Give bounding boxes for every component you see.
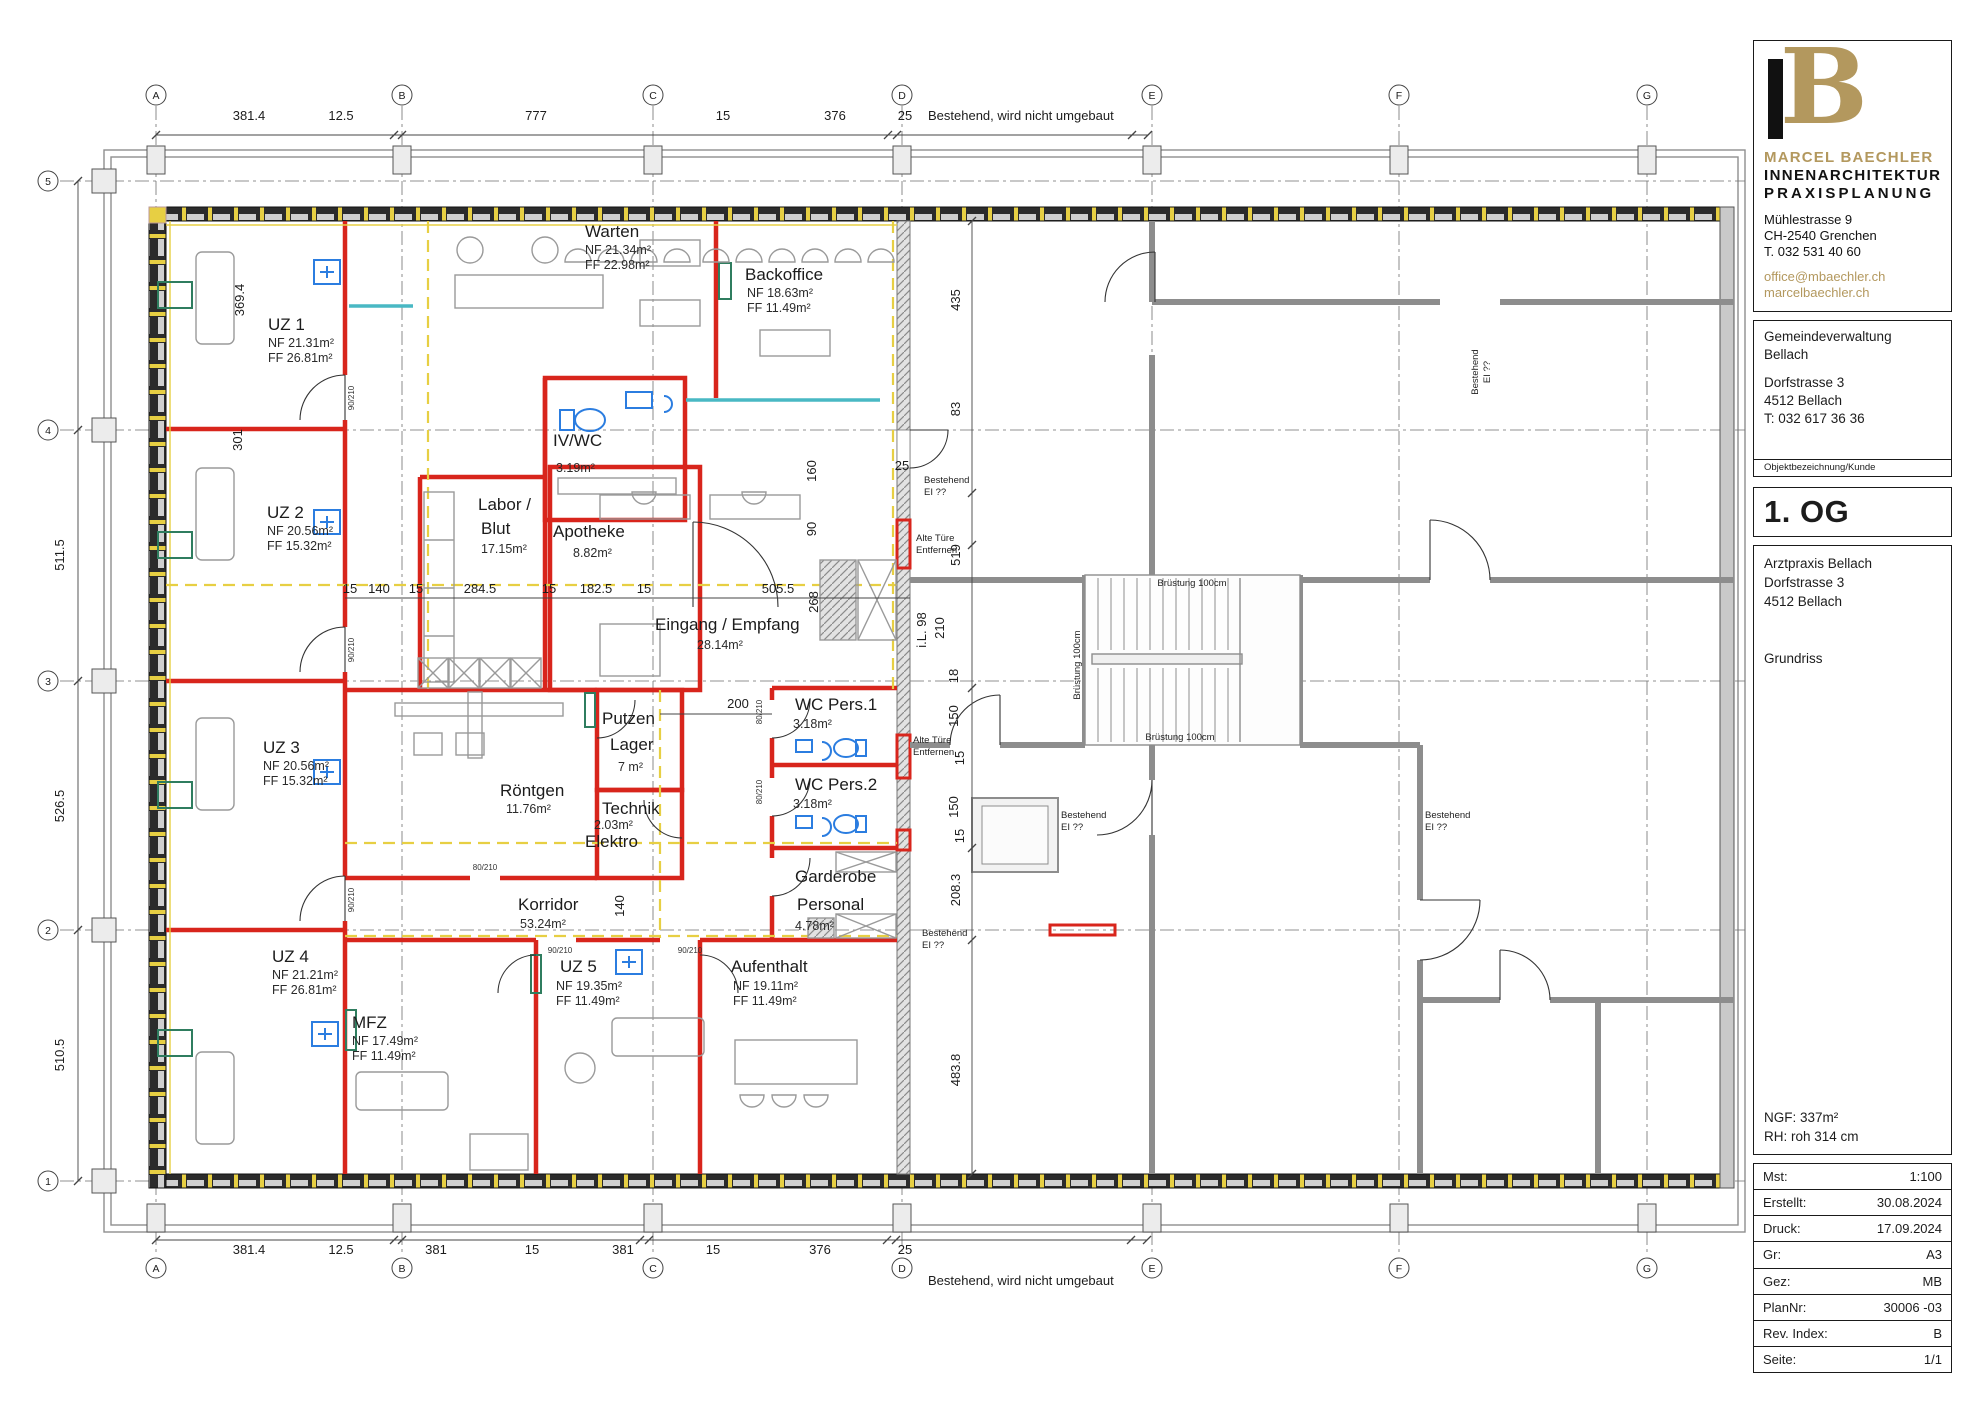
table-row-gez: Gez: MB — [1754, 1268, 1951, 1294]
room-area: 3.18m² — [793, 717, 832, 731]
titleblock-client-box: Gemeindeverwaltung Bellach Dorfstrasse 3… — [1753, 320, 1952, 477]
company-website: marcelbaechler.ch — [1764, 285, 1951, 300]
annotation-parapet: Brüstung 100cm — [1145, 732, 1214, 743]
facade-walls — [92, 146, 1734, 1232]
room-label-labor2: Blut — [481, 519, 511, 538]
dim-left-526-5: 526.5 — [52, 790, 67, 823]
dim-texts-bottom: 381.4 12.5 381 15 381 15 376 25 Bestehen… — [233, 1242, 1114, 1288]
room-label-wcpers1: WC Pers.1 — [795, 695, 877, 714]
dim-mid-15c: 15 — [542, 581, 556, 596]
room-label-putzen: Putzen — [602, 709, 655, 728]
dim-right-160: 160 — [804, 460, 819, 482]
row-label: Gez: — [1763, 1274, 1790, 1289]
room-area: 17.15m² — [481, 542, 527, 556]
grid-letter: E — [1148, 90, 1155, 102]
dim-right-90: 90 — [804, 522, 819, 536]
door-tag: 90/210 — [678, 946, 703, 955]
row-label: Rev. Index: — [1763, 1326, 1828, 1341]
room-area: FF 15.32m² — [263, 774, 328, 788]
staircase — [1085, 575, 1300, 745]
project-name: Arztpraxis Bellach — [1764, 554, 1941, 573]
annotation-old-door: Entfernen — [916, 545, 957, 556]
titleblock-floor-box: 1. OG — [1753, 487, 1952, 537]
spacer — [1764, 364, 1941, 374]
room-label-wcpers2: WC Pers.2 — [795, 775, 877, 794]
dim-mid-200: 200 — [727, 696, 749, 711]
grid-number: 1 — [45, 1176, 51, 1188]
drawing-type: Grundriss — [1754, 611, 1951, 666]
row-label: Druck: — [1763, 1221, 1801, 1236]
company-phone: T. 032 531 40 60 — [1764, 244, 1951, 259]
annotation-existing-bottom: Bestehend, wird nicht umgebaut — [928, 1273, 1114, 1288]
dim-left-510-5: 510.5 — [52, 1039, 67, 1072]
dim-mid-15d: 15 — [637, 581, 651, 596]
dim-mid-140: 140 — [368, 581, 390, 596]
floorplan-sheet: 381.4 12.5 777 15 376 25 Bestehend, wird… — [0, 0, 1984, 1403]
dim-mid-505-5: 505.5 — [762, 581, 795, 596]
door-tag: 80/210 — [473, 863, 498, 872]
table-row-plannr: PlanNr: 30006 -03 — [1754, 1294, 1951, 1320]
room-label-technik2: Elektro — [585, 832, 638, 851]
table-row-erstellt: Erstellt: 30.08.2024 — [1754, 1189, 1951, 1215]
room-area: 4.78m² — [795, 919, 834, 933]
annotation-existing-door: Bestehend — [924, 475, 969, 486]
dim-bottom-15a: 15 — [525, 1242, 539, 1257]
grid-letter: A — [152, 90, 159, 102]
annotation-existing-door: EI ?? — [922, 940, 944, 951]
dim-bottom-381-4: 381.4 — [233, 1242, 266, 1257]
grid-letter: C — [649, 90, 657, 102]
sink-icon — [314, 260, 340, 284]
toilet-icon — [834, 739, 866, 757]
room-area: NF 17.49m² — [352, 1034, 418, 1048]
dim-mid-15a: 15 — [343, 581, 357, 596]
room-area: 8.82m² — [573, 546, 612, 560]
dim-right-483-8: 483.8 — [948, 1054, 963, 1087]
room-area: NF 18.63m² — [747, 286, 813, 300]
annotation-parapet: Brüstung 100cm — [1157, 578, 1226, 589]
dim-mid-15b: 15 — [409, 581, 423, 596]
dim-top-25: 25 — [898, 108, 912, 123]
company-street: Mühlestrasse 9 — [1764, 212, 1951, 227]
annotation-old-door: Entfernen — [913, 747, 954, 758]
sink-icon — [626, 392, 672, 412]
dim-right-210: 210 — [932, 617, 947, 639]
dim-top-376: 376 — [824, 108, 846, 123]
door-tag: 90/210 — [347, 887, 356, 912]
room-area: NF 19.35m² — [556, 979, 622, 993]
room-label-mfz: MFZ — [352, 1013, 387, 1032]
dim-mid-140v: 140 — [612, 895, 627, 917]
titleblock-project-box: Arztpraxis Bellach Dorfstrasse 3 4512 Be… — [1753, 545, 1952, 1155]
row-value: 30006 -03 — [1883, 1300, 1942, 1315]
dim-right-18: 18 — [946, 669, 961, 683]
room-area: FF 26.81m² — [268, 351, 333, 365]
dim-right-150b: 150 — [946, 796, 961, 818]
door-tag: 90/210 — [347, 637, 356, 662]
room-area: 3.19m² — [556, 461, 595, 475]
room-area: 28.14m² — [697, 638, 743, 652]
door-tag: 80/210 — [755, 779, 764, 804]
table-row-revindex: Rev. Index: B — [1754, 1320, 1951, 1346]
row-label: Seite: — [1763, 1352, 1796, 1367]
dim-right-15a: 15 — [952, 751, 967, 765]
shaft — [972, 798, 1058, 872]
door-tag: 90/210 — [548, 946, 573, 955]
table-row-mst: Mst: 1:100 — [1754, 1164, 1951, 1189]
company-logo: B — [1762, 51, 1951, 147]
dim-right-208-3: 208.3 — [948, 874, 963, 907]
annotation-existing-door: Bestehend — [1425, 810, 1470, 821]
annotation-existing-door: Bestehend — [1061, 810, 1106, 821]
grid-letter: A — [152, 1263, 159, 1275]
dim-right-25: 25 — [895, 458, 909, 473]
door-tag: 80/210 — [755, 699, 764, 724]
room-label-garderobe: Garderobe — [795, 867, 876, 886]
room-area: NF 20.56m² — [263, 759, 329, 773]
floor-title: 1. OG — [1754, 488, 1951, 530]
grid-letter: B — [398, 1263, 405, 1275]
room-area: FF 22.98m² — [585, 258, 650, 272]
dim-bottom-381a: 381 — [425, 1242, 447, 1257]
grid-letter: E — [1148, 1263, 1155, 1275]
project-city: 4512 Bellach — [1764, 592, 1941, 611]
annotation-existing-door: Bestehend — [1470, 349, 1481, 394]
row-value: B — [1933, 1326, 1942, 1341]
grid-letter: G — [1643, 1263, 1651, 1275]
grid-number: 2 — [45, 925, 51, 937]
room-area: 2.03m² — [594, 818, 633, 832]
room-label-korridor: Korridor — [518, 895, 579, 914]
dim-mid-182-5: 182.5 — [580, 581, 613, 596]
room-area: FF 15.32m² — [267, 539, 332, 553]
room-area: FF 11.49m² — [556, 994, 620, 1008]
dim-top-12-5: 12.5 — [328, 108, 353, 123]
floorplan-drawing: 381.4 12.5 777 15 376 25 Bestehend, wird… — [0, 0, 1984, 1403]
room-area: 7 m² — [618, 760, 643, 774]
sink-icon — [796, 740, 831, 760]
annotation-existing-door: EI ?? — [1482, 361, 1493, 383]
dim-right-150a: 150 — [946, 705, 961, 727]
row-value: 1:100 — [1909, 1169, 1942, 1184]
table-row-seite: Seite: 1/1 — [1754, 1346, 1951, 1372]
room-label-backoffice: Backoffice — [745, 265, 823, 284]
room-area: FF 11.49m² — [747, 301, 811, 315]
dim-bottom-381b: 381 — [612, 1242, 634, 1257]
existing-walls — [910, 221, 1734, 1174]
room-area: 11.76m² — [506, 802, 551, 816]
annotation-parapet: Brüstung 100cm — [1072, 630, 1083, 699]
dim-right-435: 435 — [948, 289, 963, 311]
annotation-old-door: Alte Türe — [916, 533, 954, 544]
toilet-icon — [560, 409, 605, 431]
annotation-existing-door: EI ?? — [1061, 822, 1083, 833]
annotation-old-door: Alte Türe — [913, 735, 951, 746]
dim-right-83: 83 — [948, 402, 963, 416]
dim-mid-284-5: 284.5 — [464, 581, 497, 596]
table-row-druck: Druck: 17.09.2024 — [1754, 1215, 1951, 1241]
room-area: NF 20.56m² — [267, 524, 333, 538]
dim-texts-top: 381.4 12.5 777 15 376 25 Bestehend, wird… — [233, 108, 1114, 123]
dim-inner-369-4: 369.4 — [232, 284, 247, 317]
row-label: Erstellt: — [1763, 1195, 1806, 1210]
room-label-warten: Warten — [585, 222, 639, 241]
room-area: FF 11.49m² — [352, 1049, 416, 1063]
sink-icon — [616, 950, 642, 974]
project-ngf: NGF: 337m² — [1764, 1108, 1859, 1127]
room-area: FF 11.49m² — [733, 994, 797, 1008]
room-area: 3.18m² — [793, 797, 832, 811]
room-label-uz3: UZ 3 — [263, 738, 300, 757]
annotation-existing-door: EI ?? — [1425, 822, 1447, 833]
room-label-uz2: UZ 2 — [267, 503, 304, 522]
dim-right-il98: i.L. 98 — [914, 612, 929, 647]
titleblock-table: Mst: 1:100 Erstellt: 30.08.2024 Druck: 1… — [1753, 1163, 1952, 1373]
annotation-existing-door: EI ?? — [924, 487, 946, 498]
row-value: 1/1 — [1924, 1352, 1942, 1367]
dim-left-511-5: 511.5 — [52, 539, 67, 571]
annotation-existing-door: Bestehend — [922, 928, 967, 939]
room-label-eingang: Eingang / Empfang — [655, 615, 800, 634]
room-label-labor: Labor / — [478, 495, 531, 514]
row-value: 30.08.2024 — [1877, 1195, 1942, 1210]
grid-letter: D — [898, 1263, 906, 1275]
dim-bottom-376: 376 — [809, 1242, 831, 1257]
annotation-existing-top: Bestehend, wird nicht umgebaut — [928, 108, 1114, 123]
logo-monogram: B — [1780, 35, 1868, 139]
room-label-garderobe2: Personal — [797, 895, 864, 914]
dim-top-777: 777 — [525, 108, 547, 123]
grid-letter: C — [649, 1263, 657, 1275]
sink-icon — [796, 816, 831, 836]
room-area: FF 26.81m² — [272, 983, 337, 997]
project-street: Dorfstrasse 3 — [1764, 573, 1941, 592]
room-label-apotheke: Apotheke — [553, 522, 625, 541]
dim-mid-268: 268 — [806, 591, 821, 613]
row-label: Mst: — [1763, 1169, 1788, 1184]
room-label-technik: Technik — [602, 799, 660, 818]
row-label: Gr: — [1763, 1247, 1781, 1262]
grid-number: 4 — [45, 425, 51, 437]
row-value: 17.09.2024 — [1877, 1221, 1942, 1236]
dim-bottom-12-5: 12.5 — [328, 1242, 353, 1257]
table-row-gr: Gr: A3 — [1754, 1241, 1951, 1267]
dim-bottom-25: 25 — [898, 1242, 912, 1257]
dim-top-381-4: 381.4 — [233, 108, 266, 123]
company-tagline-2: PRAXISPLANUNG — [1764, 185, 1951, 202]
room-label-uz1: UZ 1 — [268, 315, 305, 334]
row-label: PlanNr: — [1763, 1300, 1806, 1315]
company-city: CH-2540 Grenchen — [1764, 228, 1951, 243]
row-value: MB — [1923, 1274, 1943, 1289]
room-label-roentgen: Röntgen — [500, 781, 564, 800]
grid-letter: F — [1396, 1263, 1402, 1275]
dim-right-15b: 15 — [952, 829, 967, 843]
dim-top-15: 15 — [716, 108, 730, 123]
grid-letter: F — [1396, 90, 1402, 102]
client-street: Dorfstrasse 3 — [1764, 374, 1941, 392]
grid-number: 5 — [45, 176, 51, 188]
company-email: office@mbaechler.ch — [1764, 269, 1951, 284]
company-tagline-1: INNENARCHITEKTUR — [1764, 167, 1951, 184]
client-name-2: Bellach — [1764, 346, 1941, 364]
dim-bottom-15b: 15 — [706, 1242, 720, 1257]
grid-number: 3 — [45, 676, 51, 688]
room-area: NF 21.34m² — [585, 243, 651, 257]
titleblock-logo-box: B MARCEL BAECHLER INNENARCHITEKTUR PRAXI… — [1753, 40, 1952, 312]
room-label-uz4: UZ 4 — [272, 947, 309, 966]
company-name: MARCEL BAECHLER — [1764, 149, 1951, 166]
row-value: A3 — [1926, 1247, 1942, 1262]
project-rh: RH: roh 314 cm — [1764, 1127, 1859, 1146]
room-area: NF 21.31m² — [268, 336, 334, 350]
grid-letter: D — [898, 90, 906, 102]
client-city: 4512 Bellach — [1764, 392, 1941, 410]
sink-icon — [312, 1022, 338, 1046]
room-label-ivwc: IV/WC — [553, 431, 602, 450]
client-phone: T: 032 617 36 36 — [1764, 410, 1941, 428]
dim-inner-301: 301 — [230, 429, 245, 451]
room-area: NF 21.21m² — [272, 968, 338, 982]
toilet-icon — [834, 815, 866, 833]
door-tag: 90/210 — [347, 385, 356, 410]
room-label-putzen2: Lager — [610, 735, 654, 754]
room-area: 53.24m² — [520, 917, 566, 931]
room-label-uz5: UZ 5 — [560, 957, 597, 976]
room-area: NF 19.11m² — [733, 979, 798, 993]
client-name-1: Gemeindeverwaltung — [1764, 328, 1941, 346]
client-caption: Objektbezeichnung/Kunde — [1754, 459, 1951, 476]
grid-letter: B — [398, 90, 405, 102]
grid-letter: G — [1643, 90, 1651, 102]
room-label-aufenthalt: Aufenthalt — [731, 957, 808, 976]
